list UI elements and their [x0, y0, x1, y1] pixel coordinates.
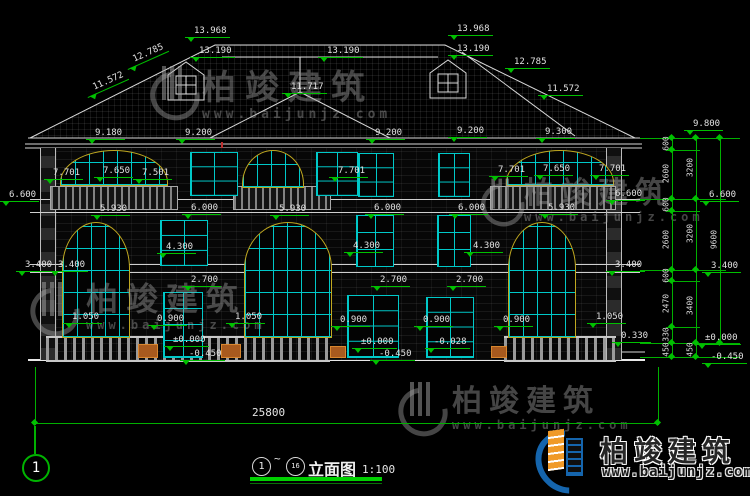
elevation-mark: 7.650: [94, 166, 133, 178]
elevation-mark: 11.572: [538, 84, 583, 96]
elevation-mark: 3.400: [606, 260, 645, 272]
elevation-mark: 5.930: [270, 204, 309, 216]
window-3f-a: [190, 152, 238, 196]
elevation-mark: 2.700: [447, 275, 486, 287]
elevation-mark: 4.300: [157, 242, 196, 254]
elevation-mark: 13.190: [318, 46, 363, 58]
elevation-mark: 0.900: [331, 315, 370, 327]
drawing-title: 立面图: [308, 456, 356, 480]
chain-seg-label: 3400: [686, 288, 695, 324]
elevation-mark: 6.000: [365, 203, 404, 215]
elevation-mark: 9.300: [536, 127, 575, 139]
chain-line-mid: [696, 138, 697, 357]
elevation-mark: 9.800: [684, 119, 723, 131]
elevation-mark: 9.200: [366, 128, 405, 140]
elevation-mark: 0.900: [414, 315, 453, 327]
chain-seg-label: 600: [662, 187, 671, 223]
axis-marker-1: 1: [22, 454, 50, 482]
elevation-mark: 13.190: [448, 44, 493, 56]
elevation-mark: 9.180: [86, 128, 125, 140]
elevation-mark: -0.450: [180, 349, 225, 361]
chain-line-outer: [720, 138, 721, 343]
chain-seg-label: 3200: [686, 150, 695, 186]
planter-box-4: [491, 346, 507, 358]
cad-elevation-drawing: 13.968 13.190 13.190 13.968 13.190 12.78…: [0, 0, 750, 496]
elevation-mark: -0.450: [370, 349, 415, 361]
planter-box-3: [330, 346, 346, 358]
elevation-mark: ±0.000: [352, 337, 397, 349]
elevation-mark: 6.600: [606, 189, 645, 201]
axis-grid-line: [34, 426, 36, 454]
elevation-mark: 5.930: [91, 204, 130, 216]
elevation-mark: 3.400: [49, 260, 88, 272]
logo-building-icon: [566, 438, 583, 476]
elevation-mark: 13.968: [185, 26, 230, 38]
elevation-mark: 4.300: [344, 241, 383, 253]
elevation-mark: 4.300: [464, 241, 503, 253]
planter-box-1: [138, 344, 158, 358]
chain-tick-line: [640, 138, 740, 139]
elevation-mark: 7.501: [133, 168, 172, 180]
overall-dim-line: [35, 423, 658, 424]
elevation-mark: 6.000: [182, 203, 221, 215]
elevation-mark: ±0.000: [696, 333, 741, 345]
elevation-mark: -0.028: [425, 337, 470, 349]
elevation-mark: 7.701: [44, 168, 83, 180]
elevation-mark: 1.050: [63, 312, 102, 324]
elevation-mark: 13.190: [190, 46, 235, 58]
logo-url-text: www.baijunjz.com: [602, 464, 750, 480]
chain-seg-label: 450: [662, 332, 671, 368]
elevation-mark: 7.650: [534, 164, 573, 176]
chain-seg-label: 3200: [686, 216, 695, 252]
dim-extension-left: [35, 367, 36, 425]
window-3f-d: [438, 153, 470, 197]
title-tilde: ~: [274, 452, 281, 465]
chain-seg-label: 450: [686, 332, 695, 368]
elevation-mark: ±0.000: [164, 335, 209, 347]
elevation-mark: 7.701: [329, 166, 368, 178]
elevation-mark: 7.701: [590, 164, 629, 176]
elevation-mark: 2.700: [371, 275, 410, 287]
elevation-mark: 0.330: [612, 331, 651, 343]
elevation-mark: 0.900: [494, 315, 533, 327]
elevation-mark: -0.450: [702, 352, 747, 364]
elevation-mark: 6.000: [449, 203, 488, 215]
elevation-mark: 0.900: [148, 314, 187, 326]
elevation-mark: 5.930: [539, 203, 578, 215]
elevation-mark: 9.200: [448, 126, 487, 138]
porch-balustrade-right: [504, 336, 616, 362]
elevation-mark: 6.600: [0, 190, 39, 202]
dim-extension-right: [658, 367, 659, 425]
elevation-mark: 9.200: [176, 128, 215, 140]
elevation-mark: 1.050: [587, 312, 626, 324]
elevation-mark: 2.700: [182, 275, 221, 287]
elevation-mark: 11.717: [282, 82, 327, 94]
title-underline-thin: [250, 483, 382, 484]
elevation-mark: 3.400: [702, 261, 741, 273]
title-circle-end: 16: [286, 457, 305, 476]
elevation-mark: 12.785: [505, 57, 550, 69]
brand-logo: 柏竣建筑 www.baijunjz.com: [532, 426, 748, 492]
logo-building-icon: [548, 429, 564, 471]
elevation-mark: 1.050: [226, 312, 265, 324]
chain-seg-label: 9600: [710, 222, 719, 258]
elevation-mark: 6.600: [700, 190, 739, 202]
elevation-mark: 13.968: [448, 24, 493, 36]
elevation-mark: 7.701: [489, 165, 528, 177]
title-circle-start: 1: [252, 457, 271, 476]
drawing-scale: 1:100: [362, 463, 395, 476]
chain-seg-label: 2600: [662, 222, 671, 258]
overall-dim-text: 25800: [252, 406, 285, 419]
